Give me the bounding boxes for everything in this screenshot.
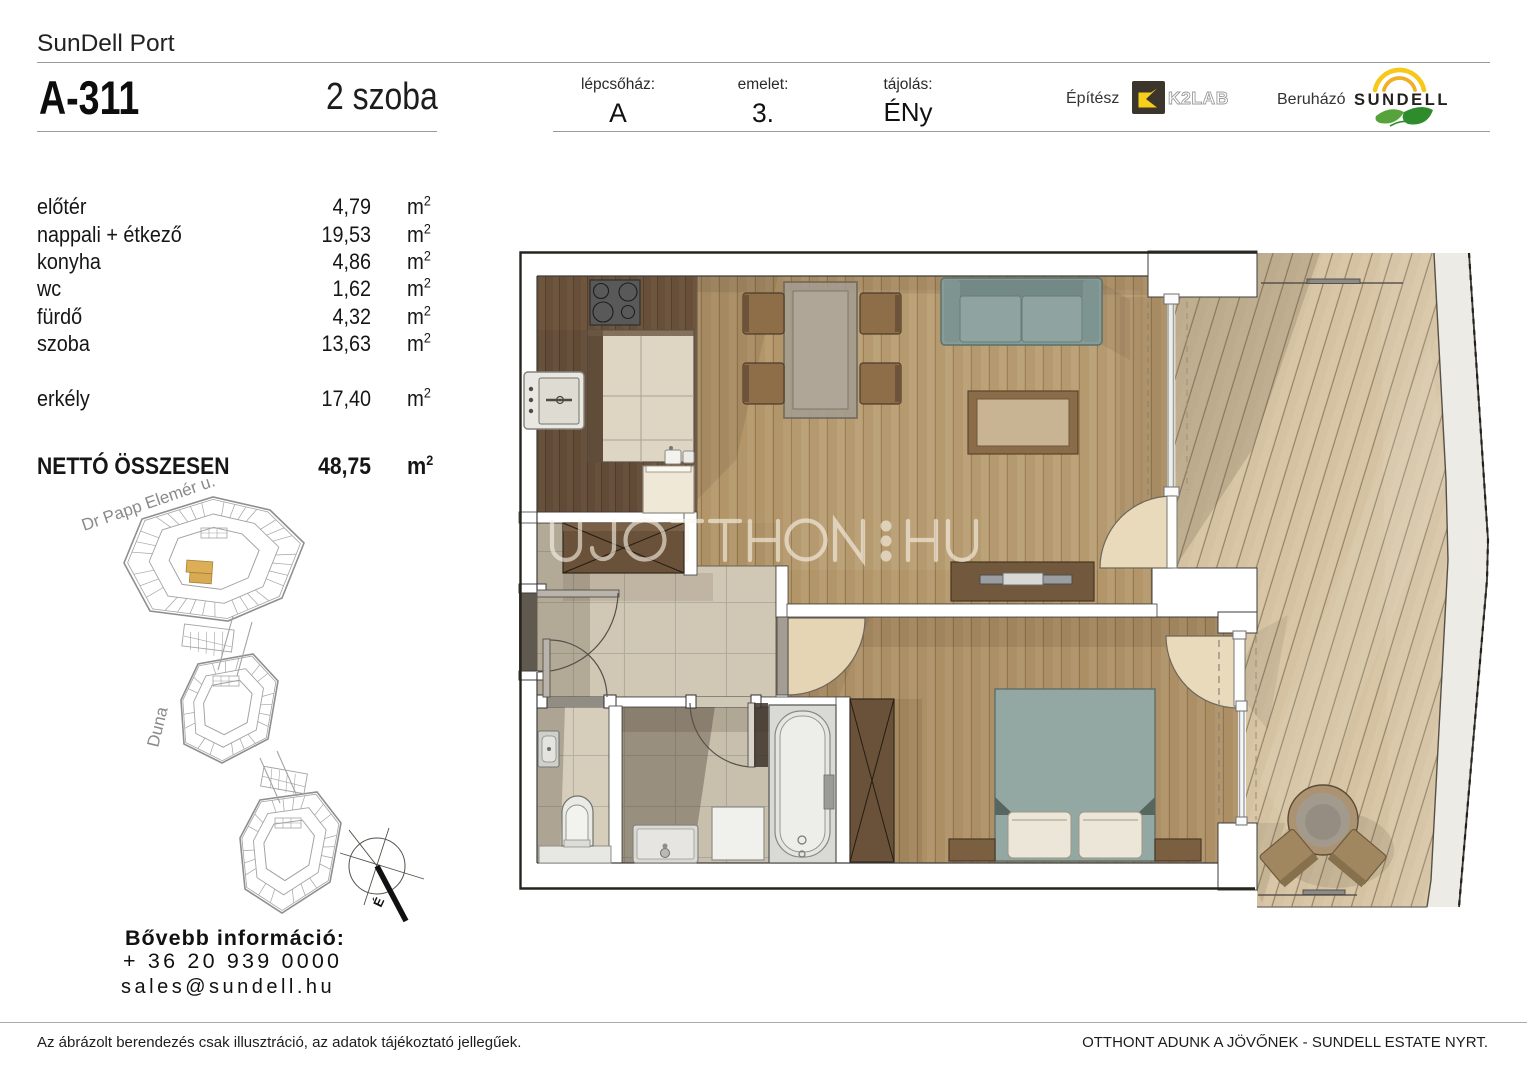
svg-text:K2LAB: K2LAB xyxy=(1168,88,1229,108)
svg-text:Dr Papp Elemér u.: Dr Papp Elemér u. xyxy=(79,471,217,534)
svg-text:SUNDELL: SUNDELL xyxy=(1354,91,1450,109)
svg-text:Duna: Duna xyxy=(143,704,171,749)
svg-text:É: É xyxy=(370,895,387,909)
